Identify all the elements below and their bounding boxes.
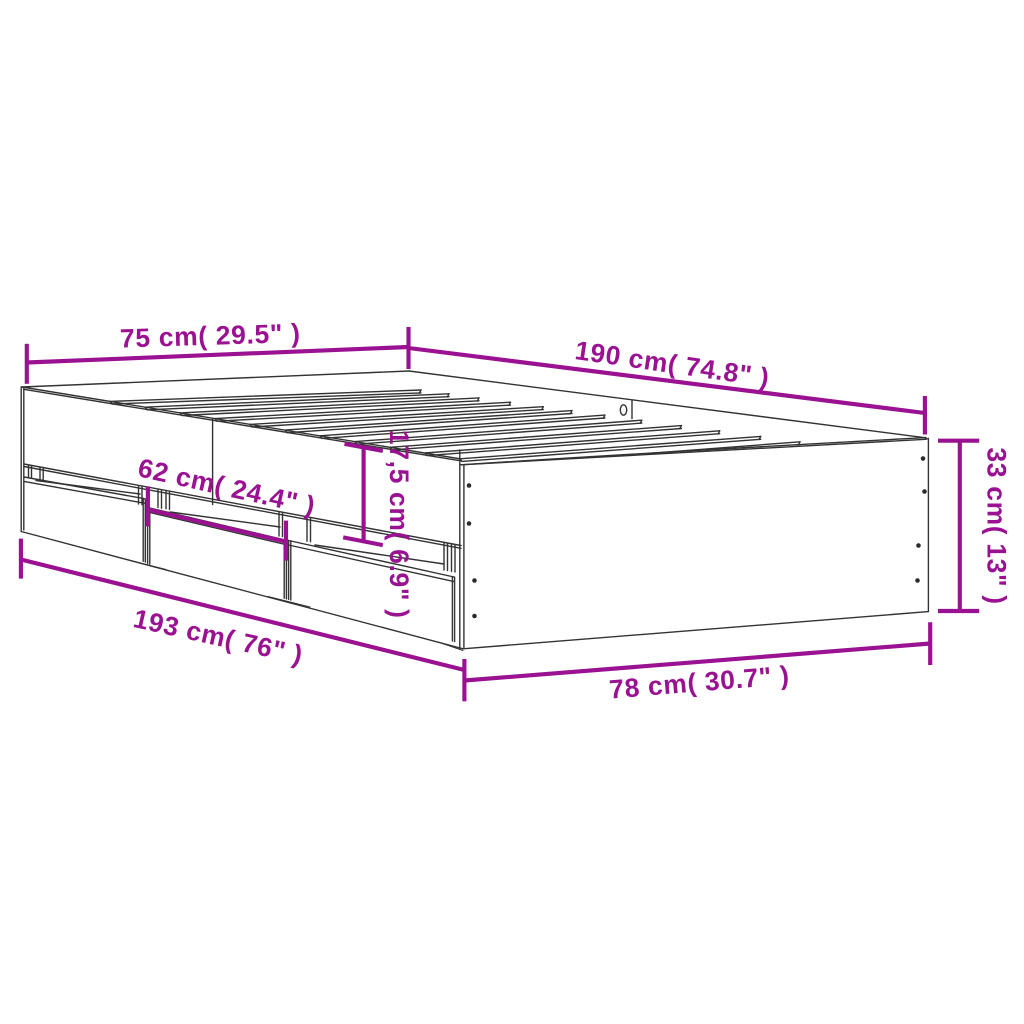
svg-text:33 cm( 13" ): 33 cm( 13" ) — [981, 447, 1011, 604]
svg-text:17,5 cm( 6.9" ): 17,5 cm( 6.9" ) — [384, 430, 414, 619]
svg-text:75 cm( 29.5" ): 75 cm( 29.5" ) — [119, 318, 301, 354]
